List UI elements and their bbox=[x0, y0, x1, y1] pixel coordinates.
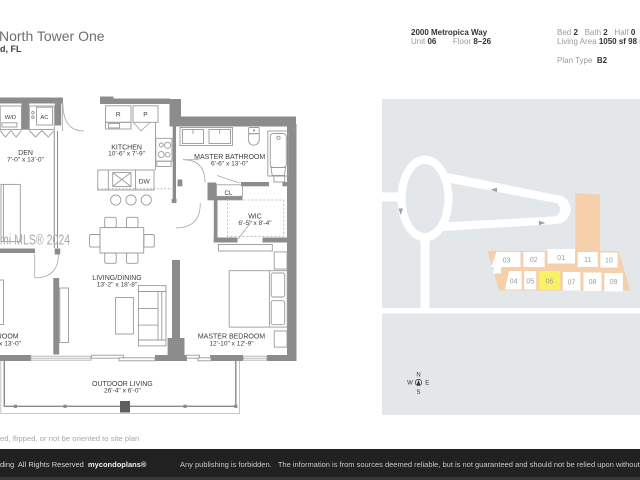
svg-text:CL: CL bbox=[225, 190, 233, 197]
svg-text:07: 07 bbox=[568, 280, 576, 287]
svg-text:10: 10 bbox=[605, 257, 613, 264]
svg-text:W/D: W/D bbox=[5, 115, 16, 121]
svg-text:03: 03 bbox=[503, 257, 511, 264]
svg-text:S: S bbox=[416, 390, 420, 396]
svg-text:R: R bbox=[116, 112, 121, 119]
svg-text:7'-0" x 13'-0": 7'-0" x 13'-0" bbox=[7, 156, 45, 163]
svg-text:AC: AC bbox=[40, 115, 48, 121]
svg-text:P: P bbox=[143, 112, 148, 119]
svg-text:26'-4" x 6'-0": 26'-4" x 6'-0" bbox=[104, 387, 142, 394]
svg-text:Miami MLS® 2024: Miami MLS® 2024 bbox=[0, 232, 70, 248]
svg-text:04: 04 bbox=[510, 278, 518, 285]
svg-text:06: 06 bbox=[546, 278, 554, 285]
svg-text:13'-2" x 18'-8": 13'-2" x 18'-8" bbox=[97, 281, 138, 288]
svg-text:DW: DW bbox=[139, 179, 151, 186]
svg-text:08: 08 bbox=[589, 279, 597, 286]
svg-text:01: 01 bbox=[557, 255, 565, 262]
svg-text:E: E bbox=[425, 381, 429, 387]
svg-text:11: 11 bbox=[584, 257, 591, 264]
svg-text:11'-0" x 13'-0": 11'-0" x 13'-0" bbox=[0, 340, 22, 347]
svg-text:09: 09 bbox=[610, 279, 618, 286]
svg-text:6'-5" x 8'-4": 6'-5" x 8'-4" bbox=[238, 220, 272, 227]
svg-text:05: 05 bbox=[526, 279, 534, 286]
svg-text:N: N bbox=[416, 372, 420, 378]
svg-text:02: 02 bbox=[530, 257, 538, 264]
svg-text:10'-6" x 7'-9": 10'-6" x 7'-9" bbox=[108, 151, 146, 158]
svg-text:12'-10" x 12'-9": 12'-10" x 12'-9" bbox=[209, 340, 254, 347]
svg-text:W: W bbox=[407, 381, 413, 387]
svg-text:6'-6" x 13'-0": 6'-6" x 13'-0" bbox=[211, 160, 249, 167]
